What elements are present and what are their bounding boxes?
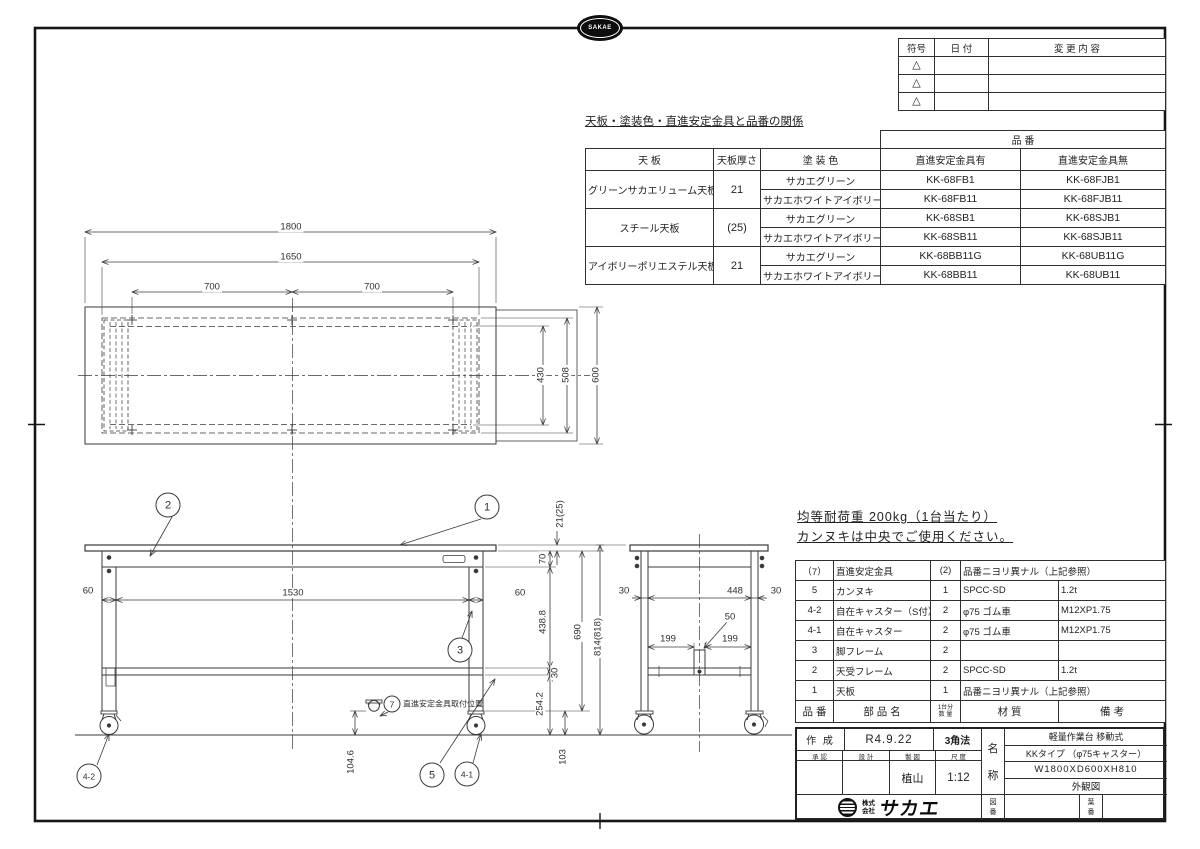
balloon: 3 xyxy=(448,638,473,663)
company-logo: 株式 会社 サカエ xyxy=(797,795,982,820)
bom-material: SPCC-SD xyxy=(961,661,1059,681)
company-prefix-top: 株式 xyxy=(862,800,875,807)
relation-thickness-cell: 21 xyxy=(714,171,761,209)
name-label-bottom: 称 xyxy=(988,767,999,783)
bom-no: 4-1 xyxy=(796,621,834,641)
bom-name: 天板 xyxy=(834,681,931,701)
bom-header-qty: 1台分 数 量 xyxy=(931,701,961,723)
dim-label: 70 xyxy=(538,552,548,567)
bom-header-name: 部 品 名 xyxy=(834,701,931,723)
revision-mark: △ xyxy=(899,93,935,111)
name-label-column: 名 称 xyxy=(982,729,1005,795)
dim-label: 700 xyxy=(362,282,382,292)
dim-label: 199 xyxy=(720,634,740,644)
revision-content-cell xyxy=(989,75,1166,93)
dim-label: 1800 xyxy=(278,222,303,232)
bom-no: 2 xyxy=(796,661,834,681)
scale-value: 1:12 xyxy=(936,761,982,795)
bom-name: 直進安定金具 xyxy=(834,561,931,581)
bom-header-no: 品 番 xyxy=(796,701,834,723)
relation-thickness-cell: 21 xyxy=(714,247,761,285)
dim-label: 700 xyxy=(202,282,222,292)
bom-material: φ75 ゴム車 xyxy=(961,621,1059,641)
bom-name: 自在キャスター（S付） xyxy=(834,601,931,621)
relation-tenban-cell: アイボリーポリエステル天板 xyxy=(586,247,714,285)
drawing-no-cell xyxy=(1005,795,1080,820)
scale-label: 尺 度 xyxy=(936,751,982,761)
bom-name: 天受フレーム xyxy=(834,661,931,681)
revision-mark: △ xyxy=(899,75,935,93)
revision-date-cell xyxy=(935,57,989,75)
product-name-line1: 軽量作業台 移動式 xyxy=(1005,729,1167,746)
revision-date-cell xyxy=(935,93,989,111)
relation-header-without: 直進安定金具無 xyxy=(1021,149,1166,171)
stabilizer-position-note: 直進安定金具取付位置 xyxy=(403,699,483,710)
approve-cell xyxy=(797,761,843,795)
draft-label: 製 図 xyxy=(890,751,936,761)
dim-label: 60 xyxy=(81,586,96,596)
bom-material xyxy=(961,641,1059,661)
sheet-no-label-top: 葉 xyxy=(1088,799,1095,806)
title-block: 作 成 R4.9.22 3角法 承 認 設 計 製 図 尺 度 植山 1:12 … xyxy=(795,727,1165,820)
bom-qty: 1 xyxy=(931,581,961,601)
bom-no: （7） xyxy=(796,561,834,581)
kannuki-note: カンヌキは中央でご使用ください。 xyxy=(797,526,1013,545)
bom-no: 4-2 xyxy=(796,601,834,621)
revision-header-date: 日 付 xyxy=(935,39,989,57)
dim-label: 430 xyxy=(536,365,546,385)
relation-partno-without: KK-68SJB1 xyxy=(1021,209,1166,228)
created-date: R4.9.22 xyxy=(845,729,934,751)
balloon: 4-1 xyxy=(455,762,480,787)
relation-color-cell: サカエグリーン xyxy=(761,247,881,266)
revision-content-cell xyxy=(989,93,1166,111)
load-note: 均等耐荷重 200kg（1台当たり） xyxy=(797,506,997,525)
bom-no: 3 xyxy=(796,641,834,661)
dim-label: 30 xyxy=(617,586,632,596)
relation-color-cell: サカエグリーン xyxy=(761,209,881,228)
relation-color-cell: サカエホワイトアイボリー xyxy=(761,228,881,247)
relation-color-cell: サカエホワイトアイボリー xyxy=(761,266,881,285)
company-prefix: 株式 会社 xyxy=(862,800,875,814)
design-cell xyxy=(843,761,890,795)
dim-label: 50 xyxy=(723,612,738,622)
relation-header-color: 塗 装 色 xyxy=(761,149,881,171)
dim-label: 199 xyxy=(658,634,678,644)
relation-partno-with: KK-68SB11 xyxy=(881,228,1021,247)
dim-label: 438.8 xyxy=(538,608,548,636)
dim-label: 30 xyxy=(550,666,560,681)
drawing-no-label-top: 図 xyxy=(990,799,997,806)
dim-label: 690 xyxy=(573,622,583,642)
relation-header-thickness: 天板厚さ xyxy=(714,149,761,171)
relation-tenban-cell: スチール天板 xyxy=(586,209,714,247)
bom-qty: 2 xyxy=(931,641,961,661)
relation-partno-without: KK-68UB11G xyxy=(1021,247,1166,266)
relation-partno-without: KK-68FJB1 xyxy=(1021,171,1166,190)
relation-partno-with: KK-68FB11 xyxy=(881,190,1021,209)
product-size: W1800XD600XH810 xyxy=(1005,762,1167,779)
balloon: 1 xyxy=(475,495,500,520)
relation-color-cell: サカエホワイトアイボリー xyxy=(761,190,881,209)
projection-method: 3角法 xyxy=(934,729,982,751)
design-label: 設 計 xyxy=(843,751,890,761)
bom-qty: 1 xyxy=(931,681,961,701)
bom-table: （7） 直進安定金具 (2) 品番ニヨリ異ナル（上記参照） 5 カンヌキ 1 S… xyxy=(795,560,1166,723)
relation-partno-without: KK-68FJB11 xyxy=(1021,190,1166,209)
relation-tenban-cell: グリーンサカエリューム天板 xyxy=(586,171,714,209)
approve-label: 承 認 xyxy=(797,751,843,761)
dim-label: 103 xyxy=(558,747,568,767)
bom-qty: 2 xyxy=(931,601,961,621)
dim-label: 30 xyxy=(769,586,784,596)
sakae-stamp-text: SAKAE xyxy=(580,18,620,38)
relation-partno-with: KK-68FB1 xyxy=(881,171,1021,190)
sakae-stamp-logo: SAKAE xyxy=(577,15,623,41)
dim-label: 814(818) xyxy=(593,616,603,658)
drafter-name: 植山 xyxy=(890,761,936,795)
relation-partno-with: KK-68BB11G xyxy=(881,247,1021,266)
name-label-top: 名 xyxy=(988,740,999,756)
balloon: 5 xyxy=(420,763,445,788)
dim-label: 600 xyxy=(591,365,601,385)
bom-header-qty-bottom: 数 量 xyxy=(931,712,960,719)
relation-color-cell: サカエグリーン xyxy=(761,171,881,190)
relation-thickness-cell: (25) xyxy=(714,209,761,247)
drawing-sheet: SAKAE 符号 日 付 変 更 内 容 △ △ △ 天板・塗装色・直進安定金具… xyxy=(0,0,1200,849)
drawing-type: 外観図 xyxy=(1005,779,1167,796)
dim-label: 1530 xyxy=(280,588,305,598)
bom-remarks: M12XP1.75 xyxy=(1059,621,1166,641)
bom-qty: 2 xyxy=(931,661,961,681)
dim-label: 254.2 xyxy=(535,690,545,718)
bom-name: 自在キャスター xyxy=(834,621,931,641)
relation-partno-with: KK-68SB1 xyxy=(881,209,1021,228)
relation-table-title: 天板・塗装色・直進安定金具と品番の関係 xyxy=(585,113,804,129)
dim-label: 1650 xyxy=(278,252,303,262)
relation-header-with: 直進安定金具有 xyxy=(881,149,1021,171)
bom-remarks: 1.2t xyxy=(1059,661,1166,681)
bom-material: SPCC-SD xyxy=(961,581,1059,601)
bom-no: 1 xyxy=(796,681,834,701)
created-label: 作 成 xyxy=(797,729,845,751)
sheet-no-label-bottom: 番 xyxy=(1088,809,1095,816)
dim-label: 448 xyxy=(725,586,745,596)
bom-remarks: M12XP1.75 xyxy=(1059,601,1166,621)
revision-table: 符号 日 付 変 更 内 容 △ △ △ xyxy=(898,38,1166,111)
revision-date-cell xyxy=(935,75,989,93)
bom-material: 品番ニヨリ異ナル（上記参照） xyxy=(961,681,1166,701)
sheet-no-cell xyxy=(1103,795,1167,820)
bom-no: 5 xyxy=(796,581,834,601)
dim-label: 104.6 xyxy=(346,748,356,776)
relation-partno-without: KK-68UB11 xyxy=(1021,266,1166,285)
bom-material: 品番ニヨリ異ナル（上記参照） xyxy=(961,561,1166,581)
bom-material: φ75 ゴム車 xyxy=(961,601,1059,621)
sheet-no-label: 葉 番 xyxy=(1080,795,1103,820)
dim-label: 21(25) xyxy=(555,498,565,529)
drawing-no-label: 図 番 xyxy=(982,795,1005,820)
company-prefix-bottom: 会社 xyxy=(862,808,875,815)
revision-header-content: 変 更 内 容 xyxy=(989,39,1166,57)
bom-header-qty-top: 1台分 xyxy=(931,705,960,712)
bom-qty: 2 xyxy=(931,621,961,641)
revision-content-cell xyxy=(989,57,1166,75)
relation-partno-with: KK-68BB11 xyxy=(881,266,1021,285)
revision-mark: △ xyxy=(899,57,935,75)
bom-header-remarks: 備 考 xyxy=(1059,701,1166,723)
bom-name: 脚フレーム xyxy=(834,641,931,661)
bom-remarks xyxy=(1059,641,1166,661)
relation-table: 品 番 天 板 天板厚さ 塗 装 色 直進安定金具有 直進安定金具無 グリーンサ… xyxy=(585,130,1166,285)
bom-qty: (2) xyxy=(931,561,961,581)
product-name-line2: KKタイプ （φ75キャスター） xyxy=(1005,746,1167,763)
bom-name: カンヌキ xyxy=(834,581,931,601)
balloon: 4-2 xyxy=(77,764,102,789)
balloon: 2 xyxy=(156,493,181,518)
dim-label: 60 xyxy=(513,588,528,598)
company-logo-icon xyxy=(838,798,857,817)
relation-header-tenban: 天 板 xyxy=(586,149,714,171)
revision-header-symbol: 符号 xyxy=(899,39,935,57)
company-name: サカエ xyxy=(878,794,943,821)
relation-spacer xyxy=(586,131,881,149)
relation-header-part-no: 品 番 xyxy=(881,131,1166,149)
dim-label: 508 xyxy=(561,365,571,385)
balloon: 7 xyxy=(384,696,401,713)
bom-header-material: 材 質 xyxy=(961,701,1059,723)
relation-partno-without: KK-68SJB11 xyxy=(1021,228,1166,247)
bom-remarks: 1.2t xyxy=(1059,581,1166,601)
drawing-no-label-bottom: 番 xyxy=(990,809,997,816)
